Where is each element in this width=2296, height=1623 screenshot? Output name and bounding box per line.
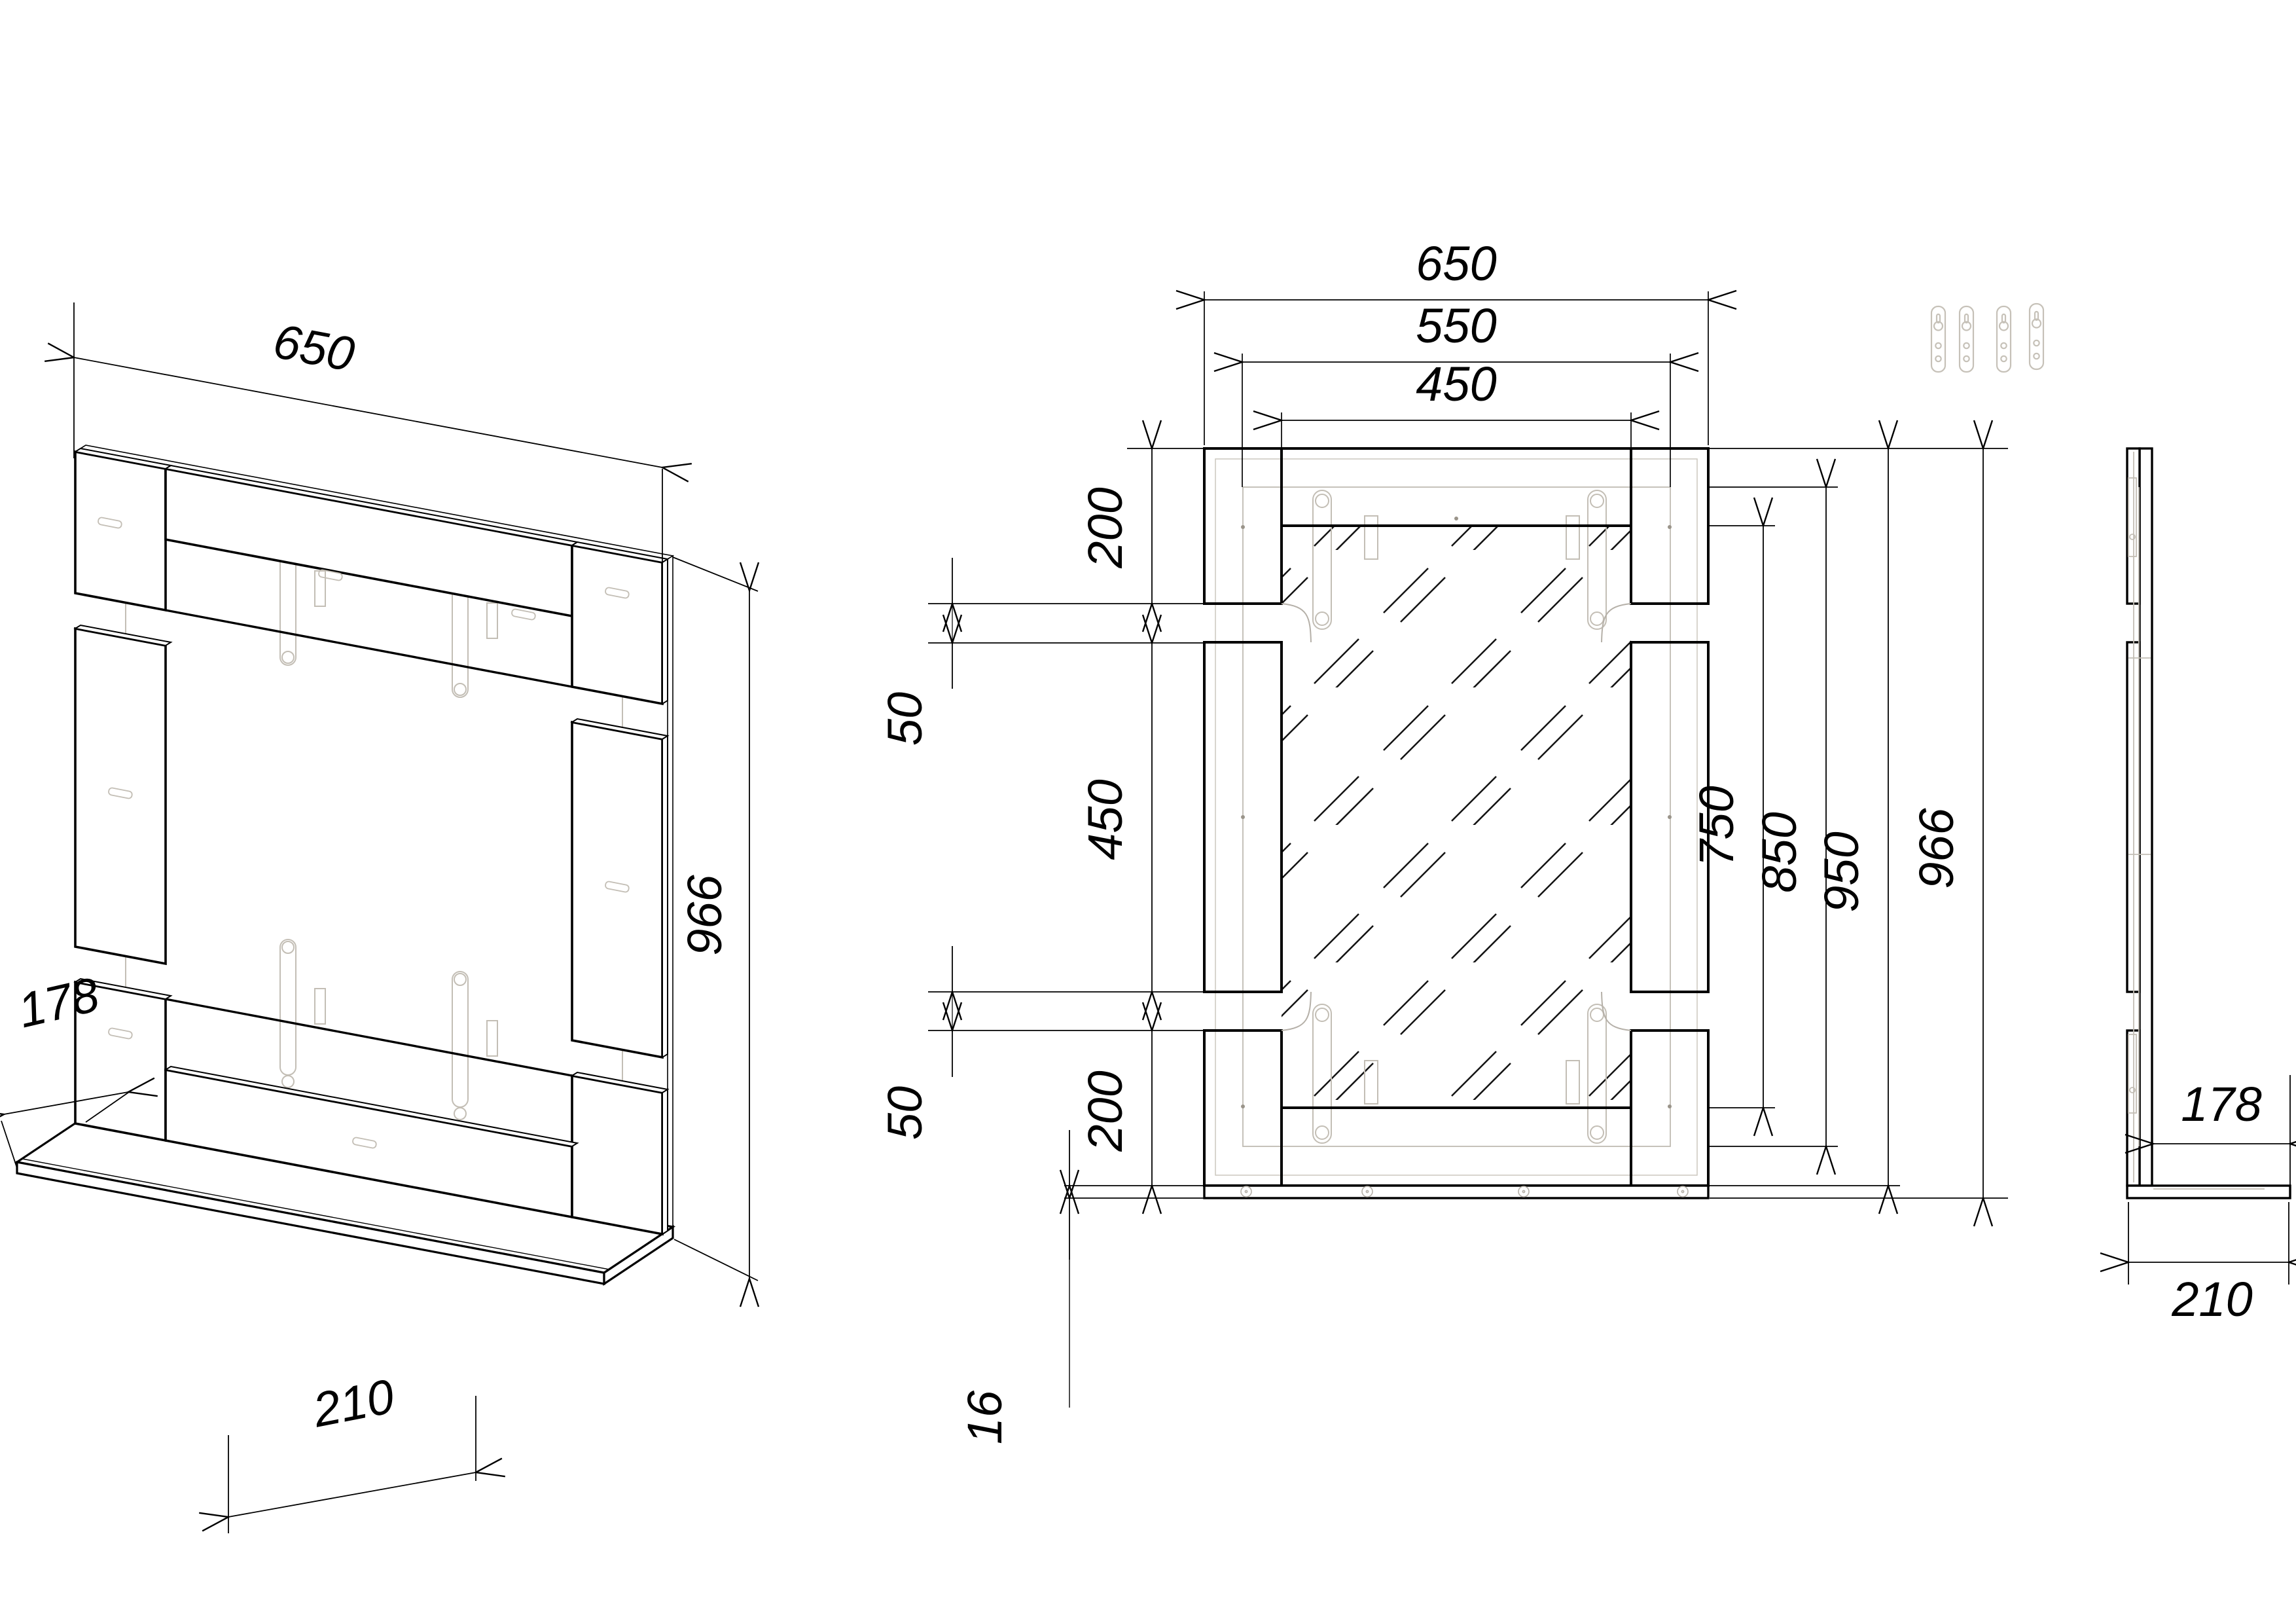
hanger-plate-4 [2030, 304, 2043, 369]
iso-dim-height: 966 [677, 874, 732, 955]
front-dim-width: 650 [1416, 236, 1496, 291]
hanger-plate-2 [1960, 306, 1973, 372]
front-bottom-bar [1282, 1108, 1631, 1186]
front-dim-frame-height: 950 [1814, 831, 1869, 912]
front-view: 650 550 450 200 50 450 50 200 16 750 850… [878, 236, 2008, 1444]
iso-bottom-right-block [572, 1076, 662, 1234]
iso-dim-total-depth: 210 [308, 1368, 399, 1437]
front-dim-gap-bottom: 50 [878, 1086, 932, 1140]
front-dim-shelf-thickness: 16 [958, 1390, 1012, 1444]
side-shelf [2127, 1186, 2290, 1198]
front-dim-gap-top: 50 [878, 692, 932, 746]
iso-left-strip [75, 629, 166, 964]
front-top-bar [1282, 448, 1631, 526]
iso-right-strip [572, 722, 662, 1057]
front-dim-bottom-block: 200 [1078, 1070, 1132, 1152]
iso-top-right-block [572, 545, 662, 704]
hanger-plate-1 [1931, 306, 1945, 372]
front-shelf [1204, 1186, 1708, 1198]
iso-dim-width: 650 [269, 314, 359, 382]
front-dim-opening-width: 450 [1416, 357, 1496, 411]
hanger-plate-3 [1997, 306, 2011, 372]
front-dim-total-height: 966 [1909, 807, 1964, 888]
drawing-canvas: 650 966 178 210 [0, 0, 2296, 1623]
isometric-view: 650 966 178 210 [1, 302, 758, 1533]
front-dim-opening-height: 750 [1689, 786, 1744, 866]
side-dim-shelf-depth: 178 [2181, 1077, 2261, 1131]
side-dim-total-depth: 210 [2171, 1272, 2252, 1326]
technical-drawing-sheet: { "sheet": { "title": "mirror-with-shelf… [0, 0, 2296, 1623]
side-back-layer [2140, 448, 2152, 1186]
front-mirror [1282, 526, 1631, 1108]
front-dim-glass-width: 550 [1416, 299, 1496, 353]
side-view: 178 210 [2127, 448, 2290, 1326]
front-dim-glass-height: 850 [1752, 812, 1806, 892]
front-dim-top-block: 200 [1078, 487, 1132, 568]
front-dim-strip: 450 [1078, 779, 1132, 860]
iso-top-left-block [75, 452, 166, 610]
hanger-plates [1931, 304, 2043, 372]
